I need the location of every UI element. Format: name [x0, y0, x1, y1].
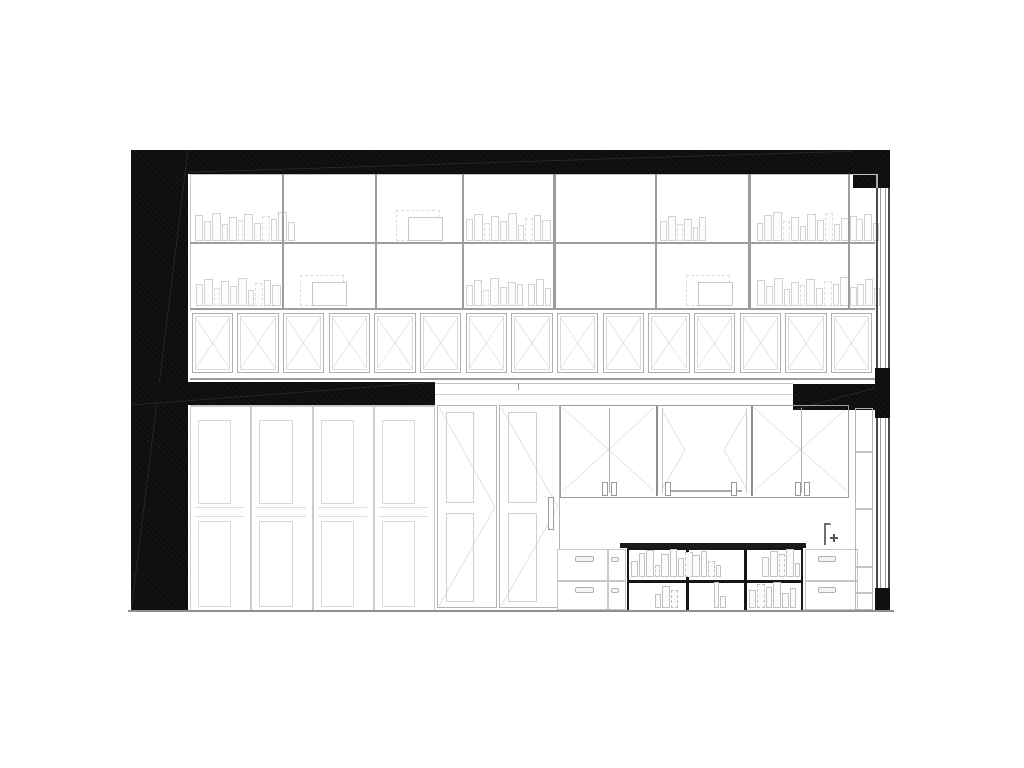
x-front-panel: [374, 313, 416, 373]
book-spine: [864, 214, 872, 241]
book-group: [762, 547, 801, 577]
book-spine: [204, 279, 213, 306]
bookshelf-divider: [282, 174, 284, 310]
x-front-panel: [192, 313, 234, 373]
book-spine: [757, 584, 765, 608]
book-group: [195, 211, 296, 241]
book-spine: [229, 217, 237, 241]
book-spine: [766, 587, 772, 608]
book-spine: [774, 278, 783, 306]
cabinet-bay-divider: [656, 406, 658, 496]
wardrobe-door-rail: [379, 516, 428, 517]
x-front-panel: [831, 313, 873, 373]
drawer-pull: [611, 588, 619, 593]
wardrobe-door-rail: [195, 516, 244, 517]
picture-frame-front: [312, 282, 347, 306]
window-glass-line: [880, 418, 881, 588]
book-spine: [816, 288, 823, 306]
window-mullion-upper: [876, 188, 890, 368]
book-spine: [791, 217, 799, 241]
book-spine: [272, 285, 281, 306]
book-spine: [824, 281, 832, 306]
book-spine: [500, 287, 507, 306]
wardrobe-door-panel-bottom: [382, 521, 415, 607]
x-front-panel: [237, 313, 279, 373]
tall-cabinet-door: [437, 405, 497, 608]
architectural-section-canvas: [0, 0, 1024, 768]
book-group: [692, 547, 722, 577]
book-group: [528, 276, 552, 306]
side-shelf-divider: [856, 508, 872, 510]
book-spine: [655, 594, 661, 608]
window-mullion-lower: [876, 418, 890, 588]
book-spine: [716, 565, 721, 577]
book-spine: [817, 220, 824, 241]
book-spine: [757, 280, 765, 306]
book-spine: [483, 290, 489, 306]
book-spine: [825, 213, 833, 241]
glazed-x-cabinet-row: [190, 311, 875, 377]
book-spine: [491, 216, 499, 241]
book-spine: [795, 563, 800, 577]
book-spine: [699, 217, 706, 241]
book-spine: [856, 219, 863, 241]
x-front-panel: [466, 313, 508, 373]
book-spine: [196, 284, 203, 306]
book-spine: [212, 213, 221, 241]
book-spine: [800, 226, 806, 241]
ceiling-slab-section: [131, 150, 890, 174]
book-spine: [238, 278, 247, 306]
drawer-unit: [557, 549, 626, 610]
wardrobe-door-panel-top: [321, 420, 354, 504]
door-swing-stub: [663, 412, 685, 450]
book-spine: [525, 218, 533, 241]
window-glass-line: [885, 188, 886, 368]
x-front-panel: [603, 313, 645, 373]
door-swing-stub: [663, 450, 685, 488]
window-glass-line: [880, 188, 881, 368]
book-spine: [670, 549, 677, 577]
book-spine: [500, 221, 507, 241]
book-spine: [701, 551, 707, 577]
book-group: [714, 578, 727, 608]
floor-slab-edge-line: [435, 383, 793, 384]
cabinet-pull: [795, 482, 801, 496]
book-spine: [262, 216, 270, 241]
book-group: [466, 276, 524, 306]
picture-frame-front: [408, 217, 443, 241]
door-handle: [548, 497, 554, 530]
wardrobe-door-rail: [379, 507, 428, 508]
open-base-shelf-unit: [627, 548, 803, 612]
x-front-panel: [329, 313, 371, 373]
wardrobe-door-panel-bottom: [259, 521, 292, 607]
picture-frame-front: [698, 282, 733, 306]
tall-side-shelf-column: [855, 408, 873, 610]
book-spine: [773, 582, 781, 608]
cabinet-bay-divider: [751, 406, 753, 496]
book-spine: [791, 282, 799, 306]
book-spine: [254, 223, 261, 241]
book-spine: [806, 279, 815, 306]
book-spine: [833, 284, 839, 306]
book-spine: [490, 278, 499, 306]
book-spine: [545, 288, 551, 306]
book-spine: [784, 289, 790, 306]
book-spine: [668, 216, 676, 241]
book-spine: [536, 279, 544, 306]
book-group: [466, 211, 552, 241]
book-spine: [692, 555, 700, 577]
drawer-unit: [805, 549, 858, 610]
book-spine: [238, 220, 243, 241]
wardrobe-door-panel-bottom: [198, 521, 231, 607]
cabinet-door-divider: [801, 408, 802, 493]
book-spine: [660, 221, 667, 241]
book-spine: [770, 551, 778, 577]
wardrobe-door-panel-top: [382, 420, 415, 504]
leaning-picture-frames: [300, 275, 348, 306]
bookshelf-divider: [553, 174, 556, 310]
bookshelf-divider: [375, 174, 377, 310]
bookshelf-divider: [462, 174, 464, 310]
book-spine: [857, 284, 864, 306]
cabinet-pull: [611, 482, 617, 496]
book-spine: [720, 596, 726, 608]
window-sill-block-lower: [875, 588, 890, 612]
cabinet-pull: [804, 482, 810, 496]
ground-line: [128, 610, 894, 612]
x-cabinet-row-base-line: [190, 378, 875, 380]
book-spine: [474, 280, 482, 306]
wardrobe-door-rail: [195, 507, 244, 508]
side-shelf-divider: [856, 451, 872, 453]
book-spine: [484, 223, 490, 241]
window-sill-block-upper: [875, 368, 890, 418]
book-spine: [662, 586, 670, 608]
drawer-pull: [818, 556, 836, 562]
tall-door-panel-bottom: [508, 513, 537, 602]
cabinet-door-divider: [609, 408, 610, 493]
book-spine: [850, 287, 857, 306]
book-spine: [779, 554, 785, 577]
book-spine: [661, 554, 669, 577]
book-spine: [677, 224, 683, 241]
book-spine: [800, 285, 805, 306]
window-glass-line: [885, 418, 886, 588]
wardrobe-door: [313, 406, 374, 611]
drawer-row-divider: [558, 580, 625, 582]
book-spine: [631, 561, 638, 577]
book-spine: [474, 214, 483, 241]
book-spine: [782, 593, 789, 608]
book-group: [757, 276, 858, 306]
wardrobe-door-panel-top: [198, 420, 231, 504]
book-group: [631, 547, 700, 577]
cabinet-pull: [602, 482, 608, 496]
book-spine: [528, 284, 535, 306]
drawer-pull: [611, 557, 619, 562]
book-spine: [195, 215, 203, 241]
door-swing-stub: [724, 450, 746, 488]
tall-door-panel-top: [508, 412, 537, 503]
book-spine: [834, 224, 840, 241]
faucet-handle-icon: [830, 537, 838, 539]
wardrobe-door-panel-top: [259, 420, 292, 504]
bookshelf-shelf-line-1: [190, 242, 875, 244]
book-spine: [244, 214, 253, 241]
book-spine: [466, 219, 473, 241]
book-spine: [214, 288, 220, 306]
leaning-picture-frames: [686, 275, 734, 306]
book-spine: [518, 225, 524, 241]
book-spine: [786, 549, 794, 577]
tall-door-panel-top: [446, 412, 474, 503]
wardrobe-door: [190, 406, 251, 611]
book-spine: [783, 221, 790, 241]
bookshelf-shelf-line-2: [190, 308, 875, 310]
x-front-panel: [740, 313, 782, 373]
book-spine: [766, 286, 773, 306]
floor-slab-section-left: [131, 382, 435, 405]
wardrobe-door-rail: [256, 516, 305, 517]
book-spine: [757, 223, 763, 241]
drawer-pull: [575, 587, 594, 593]
book-spine: [221, 281, 229, 306]
book-spine: [204, 221, 211, 241]
faucet: [824, 525, 826, 545]
slab-tick-mark: [518, 383, 519, 390]
book-spine: [508, 282, 516, 306]
drawer-pull: [575, 556, 594, 562]
book-group: [655, 578, 679, 608]
book-spine: [466, 285, 473, 306]
book-spine: [762, 557, 769, 577]
book-spine: [646, 550, 654, 577]
leaning-picture-frames: [396, 210, 444, 241]
wardrobe-door-panel-bottom: [321, 521, 354, 607]
open-bay-side-line: [746, 408, 747, 493]
x-front-panel: [694, 313, 736, 373]
x-front-panel: [557, 313, 599, 373]
book-spine: [749, 590, 756, 608]
book-spine: [264, 280, 271, 306]
book-group: [749, 578, 797, 608]
book-spine: [255, 283, 263, 306]
bookshelf-divider: [655, 174, 657, 310]
book-spine: [230, 286, 237, 306]
wardrobe-door-rail: [318, 507, 367, 508]
book-spine: [517, 284, 523, 306]
book-spine: [764, 215, 772, 241]
side-shelf-divider: [856, 592, 872, 594]
book-spine: [678, 558, 684, 577]
tall-cabinet-doors: [437, 405, 560, 608]
door-swing-stub: [724, 412, 746, 450]
x-front-panel: [511, 313, 553, 373]
book-spine: [639, 553, 645, 577]
tall-door-panel-bottom: [446, 513, 474, 602]
wardrobe-door-rail: [318, 516, 367, 517]
x-front-panel: [283, 313, 325, 373]
bookshelf-divider: [848, 174, 850, 310]
drawer-row-divider: [806, 580, 857, 582]
book-spine: [271, 219, 277, 241]
drawer-column-divider: [607, 550, 609, 609]
book-spine: [248, 290, 254, 306]
book-spine: [534, 215, 541, 241]
book-group: [196, 276, 282, 306]
wardrobe-door-rail: [256, 507, 305, 508]
wall-section-left: [131, 150, 188, 612]
drawer-pull: [818, 587, 836, 593]
book-spine: [671, 590, 678, 608]
book-spine: [288, 222, 295, 241]
kitchen-upper-cabinets: [560, 405, 849, 498]
book-spine: [714, 582, 719, 608]
book-spine: [773, 212, 782, 241]
floor-slab-soffit-line: [435, 394, 793, 395]
bookshelf-divider: [748, 174, 751, 310]
book-spine: [655, 565, 660, 577]
x-front-panel: [785, 313, 827, 373]
x-front-panel: [420, 313, 462, 373]
book-spine: [790, 588, 796, 608]
book-spine: [508, 213, 517, 241]
wardrobe-door: [374, 406, 435, 611]
side-shelf-divider: [856, 566, 872, 568]
x-front-panel: [648, 313, 690, 373]
book-spine: [542, 220, 551, 241]
wardrobe-door-run: [190, 405, 435, 611]
book-spine: [684, 219, 692, 241]
book-spine: [865, 279, 873, 306]
wardrobe-door: [251, 406, 312, 611]
book-spine: [693, 227, 698, 241]
book-spine: [222, 224, 228, 241]
book-spine: [807, 214, 816, 241]
book-spine: [708, 561, 715, 577]
book-group: [660, 211, 707, 241]
